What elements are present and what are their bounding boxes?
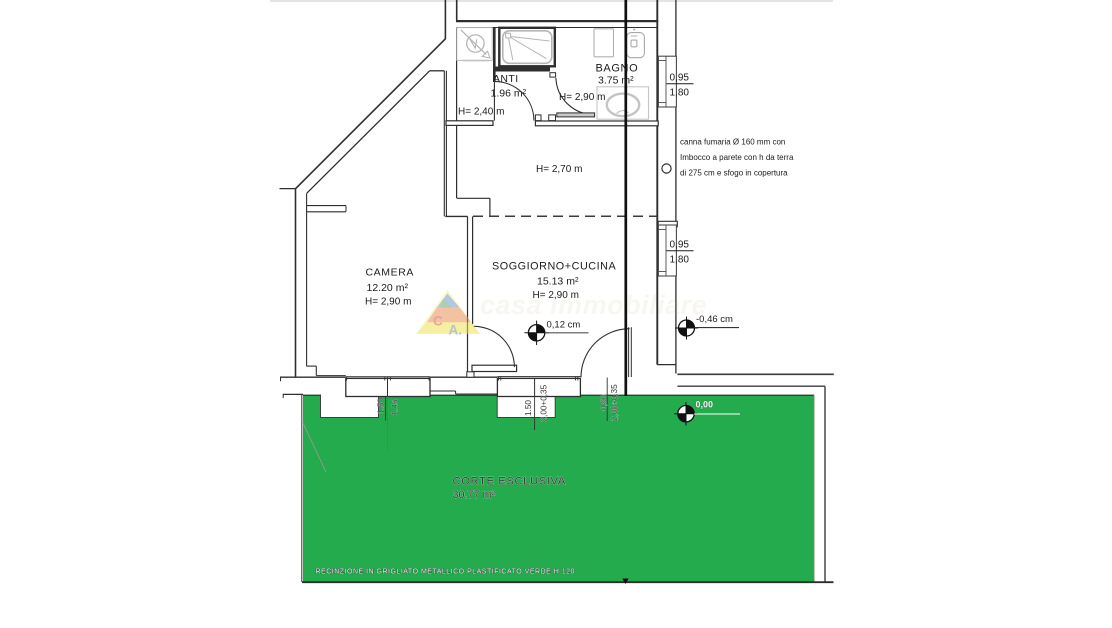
- svg-text:H= 2,90 m: H= 2,90 m: [533, 290, 579, 301]
- svg-text:BAGNO: BAGNO: [596, 63, 639, 75]
- svg-text:1,80: 1,80: [670, 88, 690, 99]
- svg-text:di 275 cm e sfogo in copertura: di 275 cm e sfogo in copertura: [680, 169, 788, 178]
- svg-text:1.96 m²: 1.96 m²: [491, 87, 527, 99]
- svg-text:2,00+0,35: 2,00+0,35: [610, 384, 619, 421]
- svg-text:H= 2,90 m: H= 2,90 m: [365, 296, 411, 307]
- svg-text:H= 2,40 m: H= 2,40 m: [458, 107, 504, 118]
- svg-text:H= 2,70 m: H= 2,70 m: [536, 164, 582, 175]
- svg-text:0,95: 0,95: [670, 73, 690, 84]
- svg-text:2,00+0,35: 2,00+0,35: [539, 384, 548, 421]
- svg-text:0,90: 0,90: [599, 394, 608, 410]
- svg-text:A.: A.: [449, 323, 463, 338]
- svg-text:CORTE ESCLUSIVA: CORTE ESCLUSIVA: [453, 476, 566, 488]
- svg-text:CAMERA: CAMERA: [366, 266, 415, 278]
- svg-text:1.50: 1.50: [524, 400, 533, 416]
- svg-text:15.13 m²: 15.13 m²: [537, 275, 579, 287]
- svg-text:C: C: [433, 314, 443, 329]
- svg-text:SOGGIORNO+CUCINA: SOGGIORNO+CUCINA: [492, 261, 617, 273]
- svg-text:casa immobiliare: casa immobiliare: [480, 290, 707, 320]
- svg-text:canna fumaria Ø 160 mm con: canna fumaria Ø 160 mm con: [680, 138, 785, 147]
- svg-text:30.77 m²: 30.77 m²: [453, 489, 496, 501]
- svg-text:1,80: 1,80: [670, 255, 690, 266]
- svg-text:ANTI: ANTI: [493, 73, 519, 85]
- svg-text:RECINZIONE IN GRIGLIATO METALL: RECINZIONE IN GRIGLIATO METALLICO PLASTI…: [316, 569, 575, 576]
- svg-text:1.45: 1.45: [391, 399, 400, 415]
- svg-text:3.75 m²: 3.75 m²: [598, 74, 634, 86]
- svg-text:Imbocco a parete con h da terr: Imbocco a parete con h da terra: [680, 153, 794, 162]
- svg-text:H= 2,90 m: H= 2,90 m: [559, 92, 605, 103]
- svg-text:1.50: 1.50: [377, 398, 386, 414]
- svg-text:0,95: 0,95: [670, 240, 690, 251]
- svg-text:0,12 cm: 0,12 cm: [547, 320, 581, 331]
- svg-text:0,00: 0,00: [696, 400, 714, 410]
- svg-text:12.20 m²: 12.20 m²: [367, 282, 409, 294]
